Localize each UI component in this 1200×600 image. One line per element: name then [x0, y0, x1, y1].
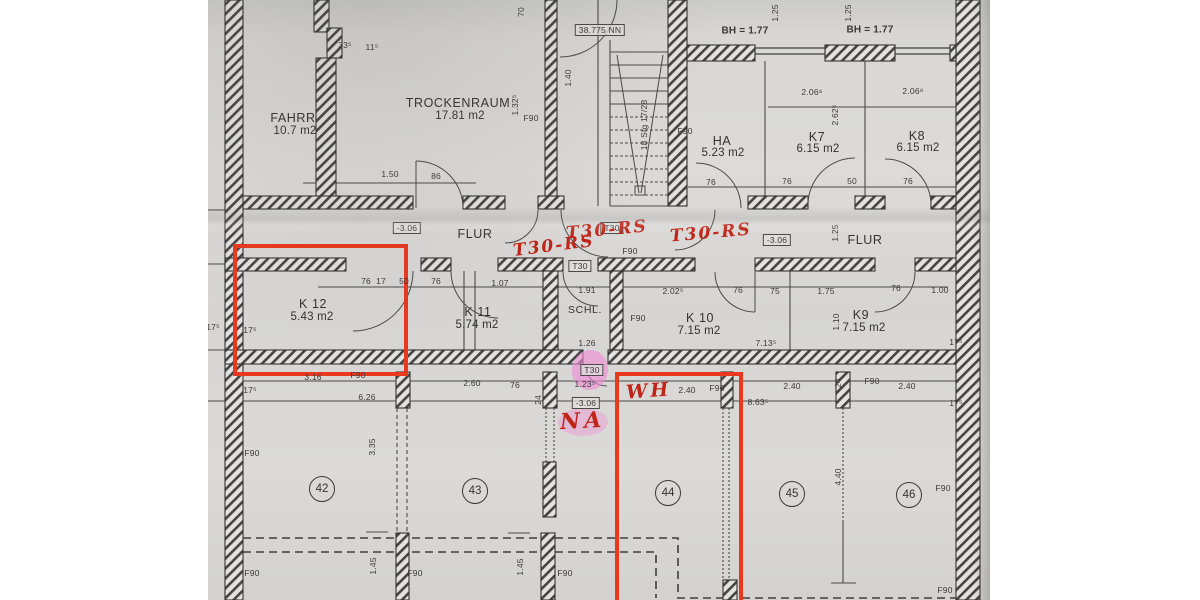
dim-label: 4.40 — [833, 468, 843, 485]
dim-label: 1.75 — [817, 286, 834, 296]
dim-label: 17⁵ — [949, 337, 963, 347]
dim-label: 1.26 — [578, 338, 595, 348]
f90-label: F90 — [244, 448, 259, 458]
dim-label: 2.60 — [463, 378, 480, 388]
floorplan-paper: FAHRR 10.7 m2 TROCKENRAUM 17.81 m2 HA 5.… — [208, 0, 990, 600]
f90-label: F90 — [677, 126, 692, 136]
datum-box: 38.775 NN — [575, 24, 625, 36]
room-area-k12: 5.43 m2 — [291, 311, 334, 323]
dim-label: 76 — [733, 285, 743, 295]
level-mark-flur-right: -3.06 — [763, 234, 791, 246]
red-annotation-na: NA — [559, 407, 605, 435]
dim-label: 11⁵ — [366, 42, 379, 52]
f90-label: F90 — [350, 370, 365, 380]
f90-label: F90 — [709, 383, 724, 393]
dim-label: 1.23⁵ — [574, 379, 595, 389]
room-label-k9: K9 — [853, 308, 870, 322]
room-area-trockenraum: 17.81 m2 — [435, 110, 485, 122]
dim-label: 1.50 — [381, 169, 398, 179]
room-label-fahrr: FAHRR — [270, 111, 315, 125]
dim-label: 1.45 — [515, 558, 525, 575]
room-label-flur-right: FLUR — [847, 233, 882, 247]
cellar-number-43: 43 — [462, 478, 488, 504]
f90-label: F90 — [523, 113, 538, 123]
dim-label: 76 — [891, 283, 901, 293]
f90-label: F90 — [622, 246, 637, 256]
dim-label: 50 — [399, 276, 409, 286]
dim-label: 24 — [533, 395, 543, 405]
t30-door-tag-3: T30 — [580, 364, 603, 376]
dim-label: 1.32⁵ — [510, 94, 520, 115]
f90-label: F90 — [557, 568, 572, 578]
dim-label: 17 — [376, 276, 386, 286]
dim-label: 1.25 — [830, 224, 840, 241]
cellar-number-45: 45 — [779, 481, 805, 507]
dim-label: 1.91 — [578, 285, 595, 295]
f90-label: F90 — [937, 585, 952, 595]
dim-label: 6.26 — [358, 392, 375, 402]
level-mark-flur-left: -3.06 — [393, 222, 421, 234]
dim-label: 70 — [516, 7, 526, 17]
f90-label: F90 — [630, 313, 645, 323]
t30-door-tag-2: T30 — [568, 260, 591, 272]
window-height-label-1: BH = 1.77 — [721, 26, 768, 37]
dim-label: 2.02⁵ — [662, 286, 683, 296]
dim-label: 50 — [847, 176, 857, 186]
dim-label: 17⁵ — [243, 325, 257, 335]
dim-label: 2.40 — [783, 381, 800, 391]
room-area-fahrr: 10.7 m2 — [274, 125, 317, 137]
room-label-schl: SCHL. — [568, 304, 602, 316]
dim-label: 3.16 — [304, 372, 321, 382]
room-area-ha: 5.23 m2 — [702, 147, 745, 159]
room-label-k7: K7 — [809, 130, 826, 144]
room-area-k7: 6.15 m2 — [797, 143, 840, 155]
room-area-k8: 6.15 m2 — [897, 142, 940, 154]
dim-label: 76 — [903, 176, 913, 186]
dim-label: 76 — [510, 380, 520, 390]
room-label-trockenraum: TROCKENRAUM — [406, 96, 511, 110]
f90-label: F90 — [864, 376, 879, 386]
dim-label: 2.40 — [678, 385, 695, 395]
cellar-number-44: 44 — [655, 480, 681, 506]
room-area-k10: 7.15 m2 — [678, 325, 721, 337]
dim-label: 2.40 — [898, 381, 915, 391]
room-label-flur-left: FLUR — [457, 227, 492, 241]
dim-label: 1.25 — [843, 4, 853, 21]
dim-label: 17⁵ — [243, 385, 257, 395]
f90-label: F90 — [244, 568, 259, 578]
dim-label: 7.13⁵ — [755, 338, 776, 348]
dim-label: 1.10 — [831, 313, 841, 330]
dim-label: 3.35 — [367, 438, 377, 455]
red-annotation-wh: WH — [625, 378, 672, 403]
dim-label: 75 — [770, 286, 780, 296]
dim-label: 1.45 — [368, 557, 378, 574]
dim-label: 2.62⁵ — [830, 104, 840, 125]
dim-label: 24 — [833, 378, 843, 388]
window-height-label-2: BH = 1.77 — [846, 25, 893, 36]
room-area-k11: 5.74 m2 — [456, 319, 499, 331]
dim-label: 86 — [431, 171, 441, 181]
dim-label: 1.00 — [931, 285, 948, 295]
f90-label: F90 — [407, 568, 422, 578]
dashed-ceiling-lines — [243, 538, 956, 598]
dim-label: 76 — [782, 176, 792, 186]
dim-label: 8.63⁵ — [747, 397, 768, 407]
dim-label: 2.06⁸ — [801, 87, 822, 97]
floorplan-photo: FAHRR 10.7 m2 TROCKENRAUM 17.81 m2 HA 5.… — [0, 0, 1200, 600]
dim-label: 76 — [706, 177, 716, 187]
stair-flight-label: 18 Stg 17/28 — [639, 100, 649, 151]
dim-label: 1.07 — [491, 278, 508, 288]
dim-label: 76 — [361, 276, 371, 286]
dim-label: 17⁵ — [949, 398, 963, 408]
cellar-number-46: 46 — [896, 482, 922, 508]
dim-label: 1.40 — [563, 69, 573, 86]
dim-label: 17⁵ — [208, 322, 220, 332]
f90-label: F90 — [935, 483, 950, 493]
room-label-k12: K 12 — [299, 297, 327, 311]
dim-label: 2.06⁸ — [902, 86, 923, 96]
room-label-k8: K8 — [909, 129, 926, 143]
room-label-ha: HA — [713, 134, 732, 148]
dim-label: 76 — [431, 276, 441, 286]
dim-label: 1.25 — [770, 4, 780, 21]
room-area-k9: 7.15 m2 — [843, 322, 886, 334]
dim-label: 33⁵ — [338, 40, 352, 50]
cellar-number-42: 42 — [309, 476, 335, 502]
room-label-k11: K 11 — [464, 305, 491, 319]
room-label-k10: K 10 — [686, 311, 714, 325]
